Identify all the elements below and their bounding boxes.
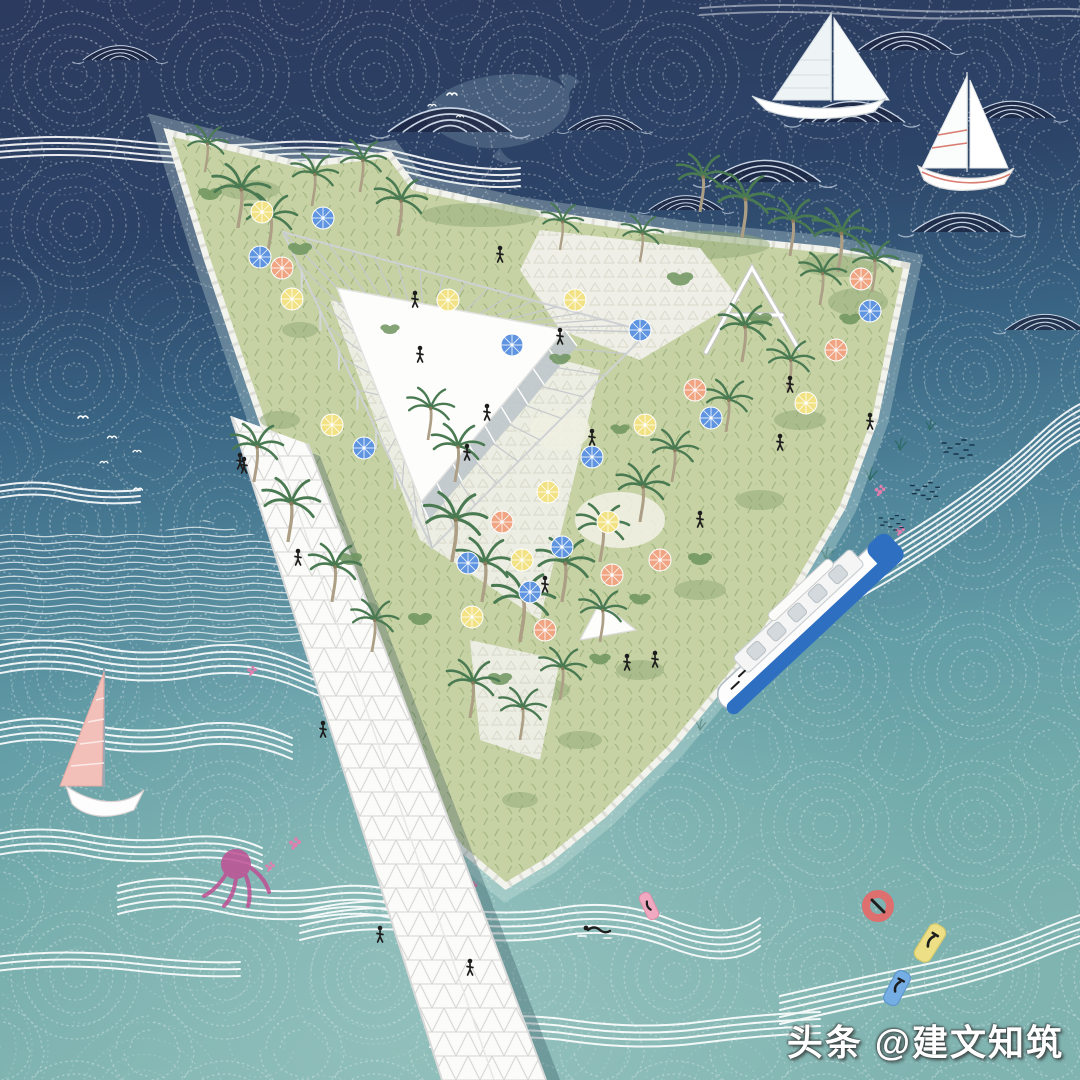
umbrella-icon [321,414,343,436]
umbrella-icon [461,606,483,628]
umbrella-icon [271,257,293,279]
umbrella-icon [684,379,706,401]
umbrella-icon [312,207,334,229]
umbrella-icon [251,201,273,223]
umbrella-icon [795,392,817,414]
swim-ring-icon [866,894,890,918]
umbrella-icon [597,511,619,533]
umbrella-icon [457,552,479,574]
umbrella-icon [850,268,872,290]
umbrella-icon [537,481,559,503]
umbrella-icon [859,300,881,322]
umbrella-icon [634,414,656,436]
umbrella-icon [601,564,623,586]
illustration-canvas: 头条 @建文知筑 [0,0,1080,1080]
umbrella-icon [281,288,303,310]
umbrella-icon [551,536,573,558]
umbrella-icon [629,319,651,341]
umbrella-icon [249,246,271,268]
umbrella-icon [700,407,722,429]
umbrella-icon [825,339,847,361]
umbrella-icon [501,334,523,356]
island-illustration [0,0,1080,1080]
umbrella-icon [519,581,541,603]
watermark: 头条 @建文知筑 [787,1014,1064,1066]
umbrella-icon [437,289,459,311]
umbrella-icon [353,437,375,459]
umbrella-icon [534,619,556,641]
umbrella-icon [491,511,513,533]
umbrella-icon [564,289,586,311]
umbrella-icon [649,549,671,571]
umbrella-icon [581,446,603,468]
umbrella-icon [511,549,533,571]
